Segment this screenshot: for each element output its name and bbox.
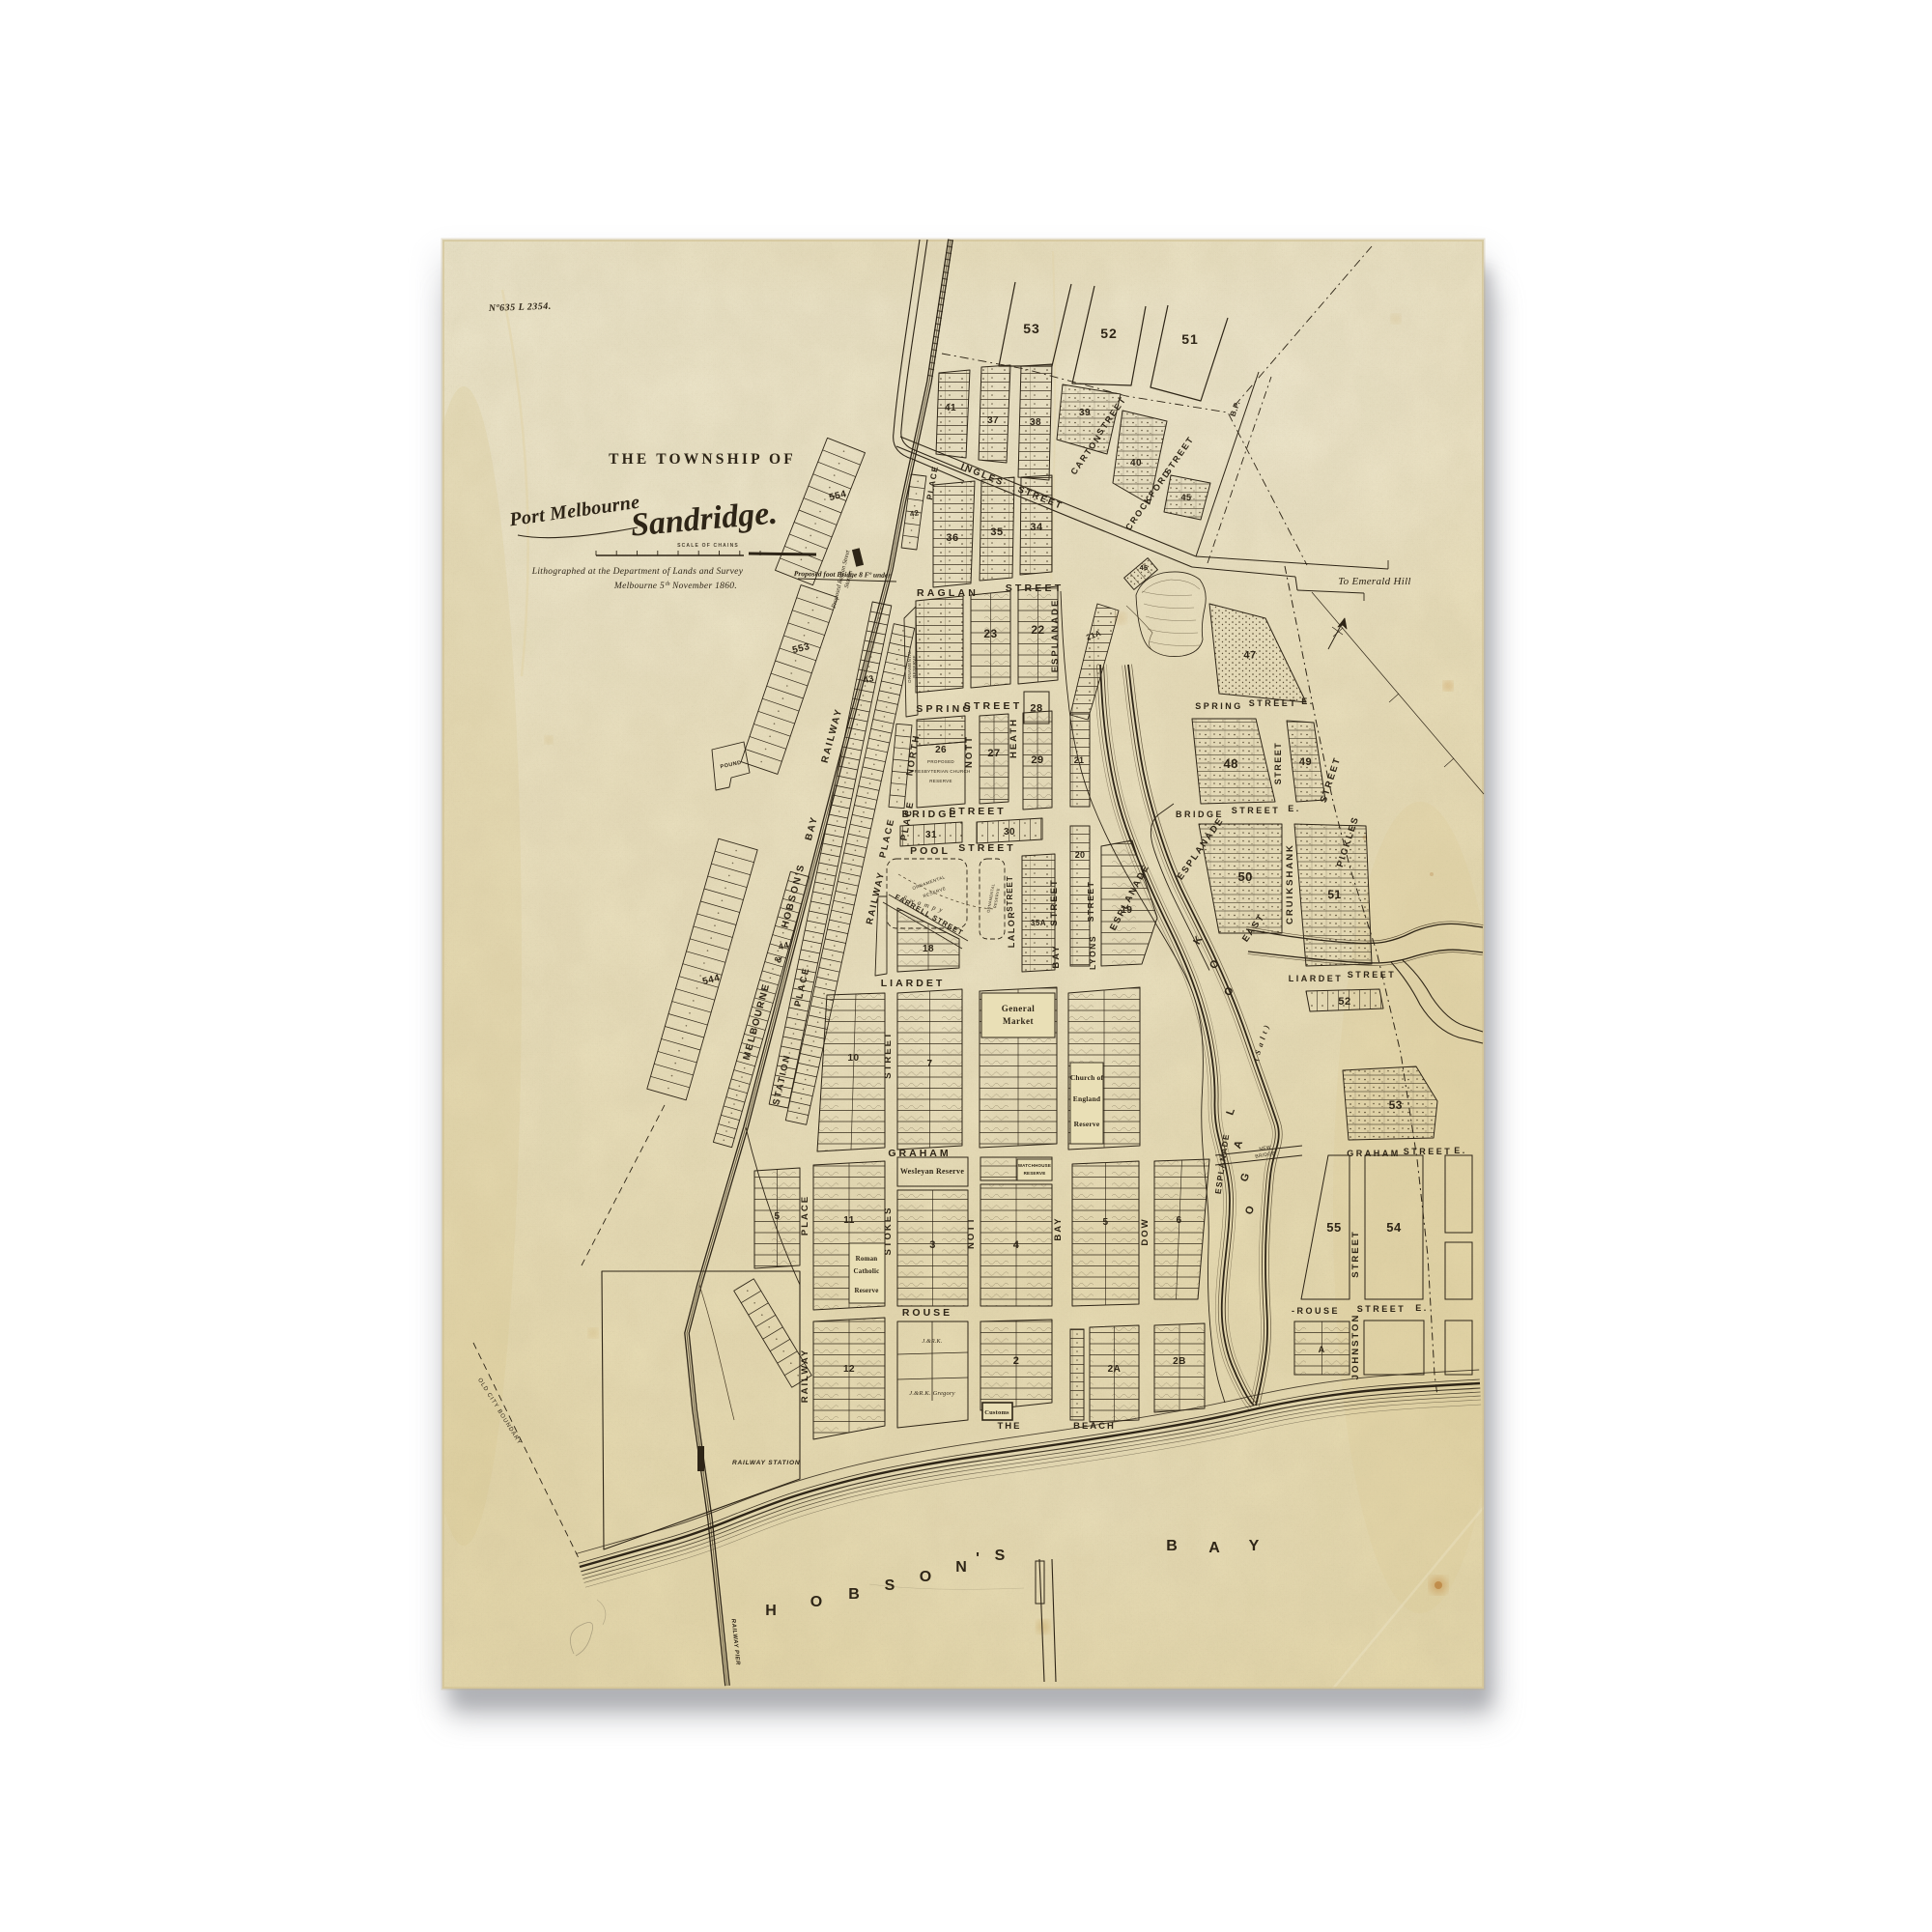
svg-text:Y: Y	[1249, 1538, 1260, 1554]
svg-text:November 1860.: November 1860.	[671, 582, 737, 591]
svg-text:42: 42	[909, 508, 920, 519]
svg-text:49: 49	[1299, 756, 1312, 768]
svg-text:35: 35	[990, 526, 1003, 538]
svg-text:GRAHAM: GRAHAM	[1347, 1149, 1401, 1158]
svg-text:12: 12	[843, 1364, 855, 1375]
svg-text:RESERVE: RESERVE	[912, 655, 917, 678]
svg-text:THE: THE	[998, 1421, 1022, 1432]
svg-text:B: B	[1166, 1538, 1178, 1554]
svg-text:27: 27	[987, 748, 1000, 759]
svg-text:E.: E.	[1288, 804, 1301, 813]
svg-text:Proposed foot Bridge 8 Fº unde: Proposed foot Bridge 8 Fº under	[794, 569, 892, 580]
svg-text:STREET: STREET	[1232, 806, 1281, 815]
svg-text:29: 29	[1031, 754, 1043, 766]
svg-text:NOTT: NOTT	[964, 735, 975, 768]
svg-text:Church of: Church of	[1070, 1073, 1104, 1082]
svg-text:PRESBYTERIAN CHURCH: PRESBYTERIAN CHURCH	[911, 769, 970, 774]
svg-text:52: 52	[1338, 996, 1350, 1008]
svg-text:Roman: Roman	[856, 1255, 878, 1263]
svg-text:10: 10	[847, 1053, 859, 1064]
svg-text:RESERVE: RESERVE	[1024, 1171, 1046, 1176]
svg-text:WATCHHOUSE: WATCHHOUSE	[1018, 1163, 1051, 1168]
svg-text:Catholic: Catholic	[854, 1267, 880, 1275]
svg-text:36: 36	[946, 532, 958, 544]
svg-text:SCALE OF CHAINS: SCALE OF CHAINS	[677, 543, 739, 549]
svg-text:-ROUSE: -ROUSE	[1292, 1306, 1340, 1316]
svg-text:B: B	[848, 1586, 860, 1603]
svg-text:SPRING: SPRING	[1195, 701, 1243, 711]
svg-text:N: N	[955, 1559, 967, 1576]
svg-text:To Emerald Hill: To Emerald Hill	[1338, 576, 1411, 587]
svg-text:A: A	[1319, 1345, 1325, 1354]
svg-text:46: 46	[1140, 563, 1149, 572]
svg-text:LALOR: LALOR	[1007, 911, 1016, 949]
svg-text:3: 3	[929, 1239, 936, 1251]
svg-text:2A: 2A	[1108, 1364, 1122, 1375]
svg-text:STREET: STREET	[1249, 698, 1298, 708]
svg-text:ROUSE: ROUSE	[902, 1307, 952, 1319]
svg-text:47: 47	[1243, 650, 1256, 662]
svg-text:STREET: STREET	[1049, 878, 1060, 925]
svg-text:5: 5	[774, 1211, 780, 1222]
svg-text:LYONS: LYONS	[1088, 935, 1097, 970]
svg-text:th: th	[666, 582, 670, 587]
svg-text:DOW: DOW	[1140, 1217, 1151, 1245]
svg-text:30: 30	[1004, 827, 1015, 838]
svg-text:STREET: STREET	[958, 842, 1015, 854]
svg-text:52: 52	[1100, 326, 1118, 341]
svg-text:J.&R.K.: J.&R.K.	[923, 1339, 943, 1345]
svg-text:': '	[976, 1550, 980, 1567]
svg-text:5: 5	[1102, 1217, 1108, 1228]
svg-text:Customs: Customs	[984, 1409, 1009, 1416]
svg-text:11: 11	[843, 1215, 855, 1226]
svg-text:2B: 2B	[1173, 1356, 1186, 1367]
svg-text:39: 39	[1079, 408, 1091, 418]
svg-text:23: 23	[983, 627, 997, 640]
svg-text:35A: 35A	[1031, 919, 1046, 927]
svg-text:ESPLANADE: ESPLANADE	[1050, 599, 1061, 673]
svg-text:Reserve: Reserve	[854, 1287, 878, 1294]
svg-text:O: O	[810, 1594, 822, 1610]
svg-text:34: 34	[1030, 522, 1043, 533]
svg-text:S: S	[885, 1577, 895, 1594]
svg-text:RAILWAY: RAILWAY	[800, 1349, 810, 1403]
svg-text:LIARDET: LIARDET	[881, 978, 946, 989]
svg-text:Lithographed at the Department: Lithographed at the Department of Lands …	[531, 566, 744, 577]
svg-text:22: 22	[1031, 623, 1044, 637]
svg-text:PROPOSED: PROPOSED	[927, 759, 954, 764]
svg-text:Reserve: Reserve	[1074, 1120, 1100, 1128]
svg-text:J.&R.K. Gregory: J.&R.K. Gregory	[909, 1390, 955, 1397]
svg-text:England: England	[1073, 1094, 1101, 1103]
svg-text:THE TOWNSHIP OF: THE TOWNSHIP OF	[609, 451, 796, 468]
svg-text:STREET: STREET	[1006, 875, 1014, 912]
svg-text:PLACE: PLACE	[800, 1195, 810, 1236]
svg-text:18: 18	[923, 944, 934, 954]
svg-text:Melbourne 5: Melbourne 5	[613, 582, 665, 591]
svg-text:RAILWAY STATION: RAILWAY STATION	[732, 1460, 800, 1466]
svg-text:STREET: STREET	[949, 806, 1006, 817]
svg-text:53: 53	[1389, 1098, 1403, 1112]
svg-text:A: A	[1208, 1540, 1220, 1556]
svg-text:BAY: BAY	[1051, 944, 1062, 968]
svg-text:S: S	[995, 1548, 1006, 1564]
svg-text:31: 31	[925, 830, 937, 840]
svg-text:JOHNSTON: JOHNSTON	[1350, 1314, 1361, 1380]
svg-text:STREET: STREET	[1357, 1304, 1406, 1314]
svg-text:RESERVE: RESERVE	[929, 779, 952, 783]
svg-text:General: General	[1002, 1004, 1036, 1013]
svg-text:53: 53	[1023, 321, 1040, 336]
svg-text:HEATH: HEATH	[1009, 718, 1019, 758]
svg-text:4: 4	[1013, 1239, 1020, 1251]
svg-text:50: 50	[1237, 869, 1252, 884]
svg-text:BAY: BAY	[1053, 1216, 1064, 1240]
svg-text:E.: E.	[1454, 1146, 1467, 1155]
svg-text:STREET: STREET	[1273, 742, 1283, 785]
svg-text:51: 51	[1327, 888, 1341, 901]
svg-text:LIARDET: LIARDET	[1289, 974, 1344, 983]
svg-text:48: 48	[1223, 756, 1237, 771]
svg-text:20: 20	[1075, 850, 1086, 860]
svg-text:45: 45	[1180, 493, 1191, 502]
svg-text:54: 54	[1386, 1220, 1402, 1235]
svg-text:Nº635 L 2354.: Nº635 L 2354.	[488, 301, 552, 314]
svg-text:38: 38	[1030, 417, 1041, 428]
svg-text:NOTT: NOTT	[966, 1216, 977, 1249]
svg-text:41: 41	[945, 403, 956, 413]
svg-text:26: 26	[935, 745, 947, 755]
svg-text:55: 55	[1326, 1220, 1341, 1235]
svg-text:37: 37	[987, 415, 999, 426]
svg-text:STREET: STREET	[1348, 970, 1397, 980]
svg-text:STREET: STREET	[964, 700, 1023, 712]
svg-text:STREET: STREET	[1404, 1147, 1453, 1156]
svg-text:O: O	[920, 1569, 931, 1585]
svg-text:6: 6	[1176, 1215, 1181, 1226]
svg-text:51: 51	[1181, 331, 1199, 347]
svg-text:H: H	[765, 1603, 777, 1619]
svg-text:7: 7	[926, 1059, 932, 1069]
svg-text:Wesleyan Reserve: Wesleyan Reserve	[900, 1167, 964, 1176]
svg-text:40: 40	[1130, 458, 1142, 469]
svg-text:2: 2	[1013, 1355, 1020, 1367]
svg-text:Market: Market	[1003, 1016, 1034, 1026]
svg-text:STREET: STREET	[1086, 881, 1095, 923]
svg-text:STREET: STREET	[1350, 1230, 1361, 1277]
svg-text:CRUIKSHANK: CRUIKSHANK	[1285, 843, 1295, 924]
svg-text:POOL: POOL	[910, 845, 951, 857]
svg-text:E.: E.	[1415, 1303, 1429, 1313]
